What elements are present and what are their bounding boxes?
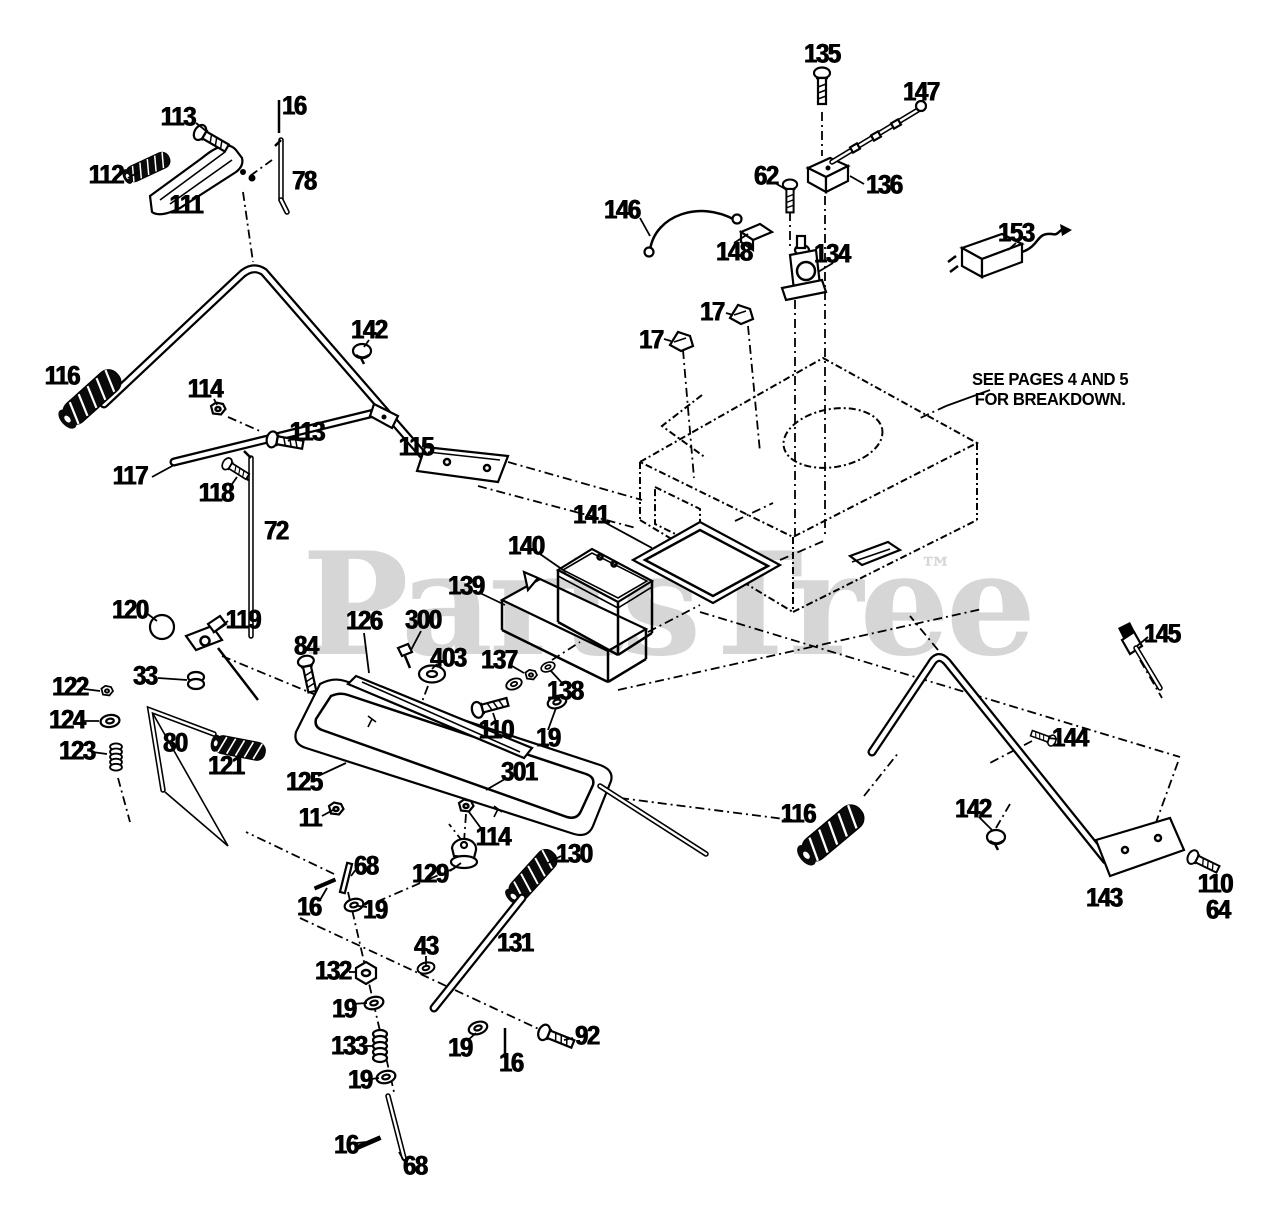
part-label-62: 62 [754, 161, 778, 192]
part-label-138: 138 [547, 676, 583, 707]
part-label-113: 113 [290, 417, 324, 448]
part-label-110: 110 [479, 715, 513, 746]
part-label-72: 72 [264, 516, 288, 547]
part-label-123: 123 [59, 736, 95, 767]
part-label-146: 146 [604, 195, 640, 226]
parts-diagram-page: PartsTree ™ [0, 0, 1280, 1224]
part-label-11: 11 [299, 803, 321, 834]
part-label-19: 19 [348, 1065, 372, 1096]
part-label-16: 16 [282, 91, 306, 122]
part-label-16: 16 [499, 1048, 523, 1079]
part-label-84: 84 [294, 631, 318, 662]
part-label-135: 135 [804, 39, 840, 70]
part-label-17: 17 [639, 325, 663, 356]
part-label-142: 142 [955, 794, 991, 825]
part-label-19: 19 [448, 1033, 472, 1064]
part-label-116: 116 [781, 799, 815, 830]
part-label-122: 122 [52, 672, 88, 703]
part-label-117: 117 [113, 461, 147, 492]
part-label-403: 403 [430, 643, 466, 674]
part-label-131: 131 [497, 928, 533, 959]
part-label-132: 132 [315, 956, 351, 987]
part-label-68: 68 [354, 851, 378, 882]
part-label-125: 125 [286, 767, 322, 798]
part-label-119: 119 [226, 605, 260, 636]
part-label-300: 300 [405, 605, 441, 636]
part-label-111: 111 [169, 190, 202, 221]
part-label-118: 118 [199, 478, 233, 509]
part-label-16: 16 [297, 892, 321, 923]
part-label-142: 142 [351, 315, 387, 346]
part-label-68: 68 [403, 1151, 427, 1182]
part-label-16: 16 [334, 1130, 358, 1161]
part-label-153: 153 [998, 218, 1034, 249]
part-label-137: 137 [481, 645, 517, 676]
part-label-129: 129 [412, 859, 448, 890]
part-label-43: 43 [414, 931, 438, 962]
part-label-136: 136 [866, 170, 902, 201]
part-label-301: 301 [501, 757, 537, 788]
part-label-140: 140 [508, 531, 544, 562]
part-label-19: 19 [363, 895, 387, 926]
part-label-124: 124 [49, 705, 85, 736]
part-label-147: 147 [903, 77, 939, 108]
part-label-19: 19 [536, 723, 560, 754]
part-label-126: 126 [346, 606, 382, 637]
part-label-113: 113 [161, 102, 195, 133]
part-label-114: 114 [188, 374, 222, 405]
part-labels-layer: 1131611211178135147621361461481341531717… [0, 0, 1280, 1224]
part-label-115: 115 [399, 432, 433, 463]
part-label-144: 144 [1052, 723, 1088, 754]
part-label-19: 19 [332, 994, 356, 1025]
part-label-141: 141 [573, 500, 609, 531]
part-label-143: 143 [1086, 883, 1122, 914]
part-label-121: 121 [208, 751, 244, 782]
part-label-92: 92 [575, 1021, 599, 1052]
part-label-130: 130 [556, 839, 592, 870]
part-label-112: 112 [89, 160, 123, 191]
part-label-145: 145 [1144, 619, 1180, 650]
part-label-64: 64 [1206, 895, 1230, 926]
part-label-116: 116 [45, 361, 79, 392]
part-label-114: 114 [476, 822, 510, 853]
part-label-148: 148 [716, 237, 752, 268]
part-label-78: 78 [292, 166, 316, 197]
part-label-17: 17 [700, 297, 724, 328]
part-label-80: 80 [163, 728, 187, 759]
part-label-139: 139 [448, 571, 484, 602]
part-label-133: 133 [331, 1031, 367, 1062]
part-label-134: 134 [814, 239, 850, 270]
part-label-33: 33 [133, 661, 157, 692]
part-label-120: 120 [112, 595, 148, 626]
